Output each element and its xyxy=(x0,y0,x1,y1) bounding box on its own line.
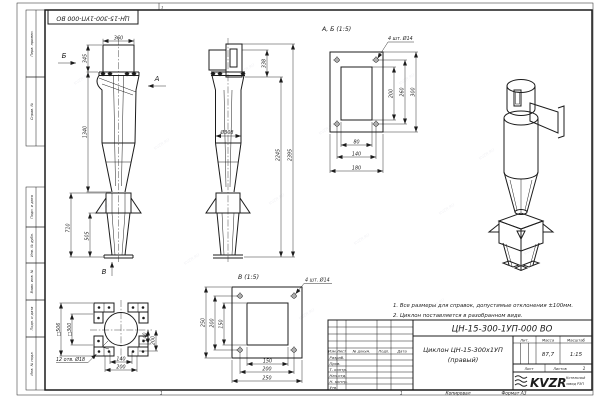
dim-200h: 200 xyxy=(116,365,125,371)
iso-support-top xyxy=(499,213,543,229)
watermark: KVZR.RU xyxy=(238,62,256,76)
drawing-canvas: KVZR.RU KVZR.RU KVZR.RU KVZR.RU KVZR.RU … xyxy=(0,0,600,400)
note-2: 2. Циклон поставляется в разобранном вид… xyxy=(393,313,523,319)
section-v-view: В (1:5) 4 шт. Ø14 250 200 150 150 200 25… xyxy=(201,274,333,383)
fold-mark: 1 xyxy=(161,5,163,10)
dim-505: 505 xyxy=(85,231,91,240)
dim-ab-200: 200 xyxy=(389,89,395,98)
dim-360: 360 xyxy=(114,36,123,42)
copied-label: Копировал xyxy=(445,391,470,397)
bottom-mark: 1 xyxy=(400,391,403,396)
frame-col-label: Инв. № подл. xyxy=(30,351,34,375)
row-prov: Пров. xyxy=(330,361,341,366)
watermark: KVZR.RU xyxy=(153,137,171,151)
company-line1: Котельный xyxy=(566,376,586,380)
stamp-number: ЦН-15-300-1УП-000 ВО xyxy=(56,15,129,22)
bottom-fold-mark: 1 xyxy=(160,391,163,396)
dim-ab-300: 300 xyxy=(411,87,417,96)
dim-v-250b: 250 xyxy=(262,376,271,382)
watermark: KVZR.RU xyxy=(183,252,201,266)
dim-140v: 140 xyxy=(143,332,149,341)
mass-value: 87,7 xyxy=(542,352,555,358)
dim-140h: 140 xyxy=(116,357,125,363)
base-plate xyxy=(232,287,302,358)
frame-col-label: Взам. инв. № xyxy=(30,269,34,293)
notes: 1. Все размеры для справок, допустимые о… xyxy=(393,303,573,319)
col-data: Дата xyxy=(396,350,406,354)
logo-text: KVZR xyxy=(530,376,567,390)
row-utv: Утв. xyxy=(330,385,338,390)
dim-710: 710 xyxy=(66,223,72,232)
view-arrow-v: В xyxy=(102,268,107,276)
col-list: Лист xyxy=(336,350,347,354)
dim-338: 338 xyxy=(262,59,268,68)
frame-col-label: Справ. № xyxy=(30,103,34,120)
dim-sq506: □506 xyxy=(56,323,62,337)
frame-col-label: Перв. примен. xyxy=(30,30,34,56)
doc-number: ЦН-15-300-1УП-000 ВО xyxy=(452,325,553,335)
dim-v-200l: 200 xyxy=(210,318,216,327)
watermark: KVZR.RU xyxy=(438,202,456,216)
dim-v-250l: 250 xyxy=(201,318,207,327)
sheets-value: 1 xyxy=(583,366,586,372)
isometric-view xyxy=(489,80,564,271)
base-opening xyxy=(247,303,288,345)
row-tkontr: Т. контр. xyxy=(330,367,348,372)
watermark: KVZR.RU xyxy=(478,147,496,161)
dim-v-150b: 150 xyxy=(263,359,272,365)
dim-ab-140: 140 xyxy=(352,152,361,158)
watermark: KVZR.RU xyxy=(268,192,286,206)
dim-2395: 2395 xyxy=(288,149,294,161)
frame-side-columns: Перв. примен. Справ. № Подп. и дата Инв.… xyxy=(26,10,45,390)
part-name-line2: (правый) xyxy=(448,356,479,364)
col-podp: Подп. xyxy=(379,350,390,354)
scale-label: Масштаб xyxy=(567,338,586,343)
holes-note-v: 4 шт. Ø14 xyxy=(305,277,330,284)
inlet-opening xyxy=(341,67,372,120)
title-block: Изм. Лист № докум. Подп. Дата Разраб. Пр… xyxy=(328,320,592,390)
sheet-label: Лист xyxy=(523,367,534,371)
outlet-box-side xyxy=(209,50,226,70)
watermark: KVZR.RU xyxy=(353,232,371,246)
company-line2: завод РЭП xyxy=(566,382,584,386)
holes-note-ab: 4 шт. Ø14 xyxy=(388,35,413,42)
sheets-label: Листов xyxy=(552,367,566,371)
row-nachotd: Нач.отд. xyxy=(330,373,347,378)
dim-sq300: □300 xyxy=(67,323,73,337)
company-logo: KVZR Котельный завод РЭП xyxy=(515,376,586,390)
dim-v-150l: 150 xyxy=(219,319,225,328)
dim-345: 345 xyxy=(83,54,89,63)
frame-col-label: Подп. и дата xyxy=(30,195,34,219)
col-izm: Изм. xyxy=(328,350,336,354)
watermark: KVZR.RU xyxy=(298,307,316,321)
scale-value: 1:15 xyxy=(570,352,583,358)
dim-ab-260: 260 xyxy=(400,87,406,96)
watermark: KVZR.RU xyxy=(318,122,336,136)
section-ab-view: А, Б (1:5) 4 шт. Ø14 200 260 300 80 140 … xyxy=(321,26,418,173)
mass-label: Масса xyxy=(542,338,555,343)
iso-inlet-duct xyxy=(530,103,558,133)
inlet-slot xyxy=(230,49,237,67)
note-1: 1. Все размеры для справок, допустимые о… xyxy=(393,303,573,309)
watermark: KVZR.RU xyxy=(398,72,416,86)
frame-col-label: Инв. № дубл. xyxy=(30,233,34,257)
dim-ab-180: 180 xyxy=(352,166,361,172)
frame-col-label: Подп. и дата xyxy=(30,307,34,331)
format-label: Формат А3 xyxy=(501,391,526,397)
bottom-view: □506 □300 140 200 140 200 12 отв. Ø18 xyxy=(56,300,158,372)
row-razrab: Разраб. xyxy=(330,355,345,360)
dim-2245: 2245 xyxy=(276,149,282,161)
dim-1340: 1340 xyxy=(83,126,89,138)
front-view: 360 345 1340 710 505 Б А В xyxy=(58,36,166,276)
view-arrow-a: А xyxy=(154,75,160,83)
dim-ab-80: 80 xyxy=(353,140,359,146)
dim-v-200b: 200 xyxy=(262,367,271,373)
section-ab-label: А, Б (1:5) xyxy=(321,26,351,33)
part-name-line1: Циклон ЦН-15-300х1УП xyxy=(423,346,503,354)
dim-d308: Ø308 xyxy=(220,129,234,136)
view-arrow-b: Б xyxy=(62,52,67,60)
section-v-label: В (1:5) xyxy=(238,274,259,281)
row-nkontr: Н. контр. xyxy=(330,379,348,384)
lit-label: Лит. xyxy=(519,338,529,343)
col-docnum: № докум. xyxy=(352,350,371,354)
holes-note-bottom: 12 отв. Ø18 xyxy=(56,356,85,363)
side-view: Ø308 338 2245 2395 xyxy=(206,38,295,262)
dim-200v: 200 xyxy=(151,336,157,345)
